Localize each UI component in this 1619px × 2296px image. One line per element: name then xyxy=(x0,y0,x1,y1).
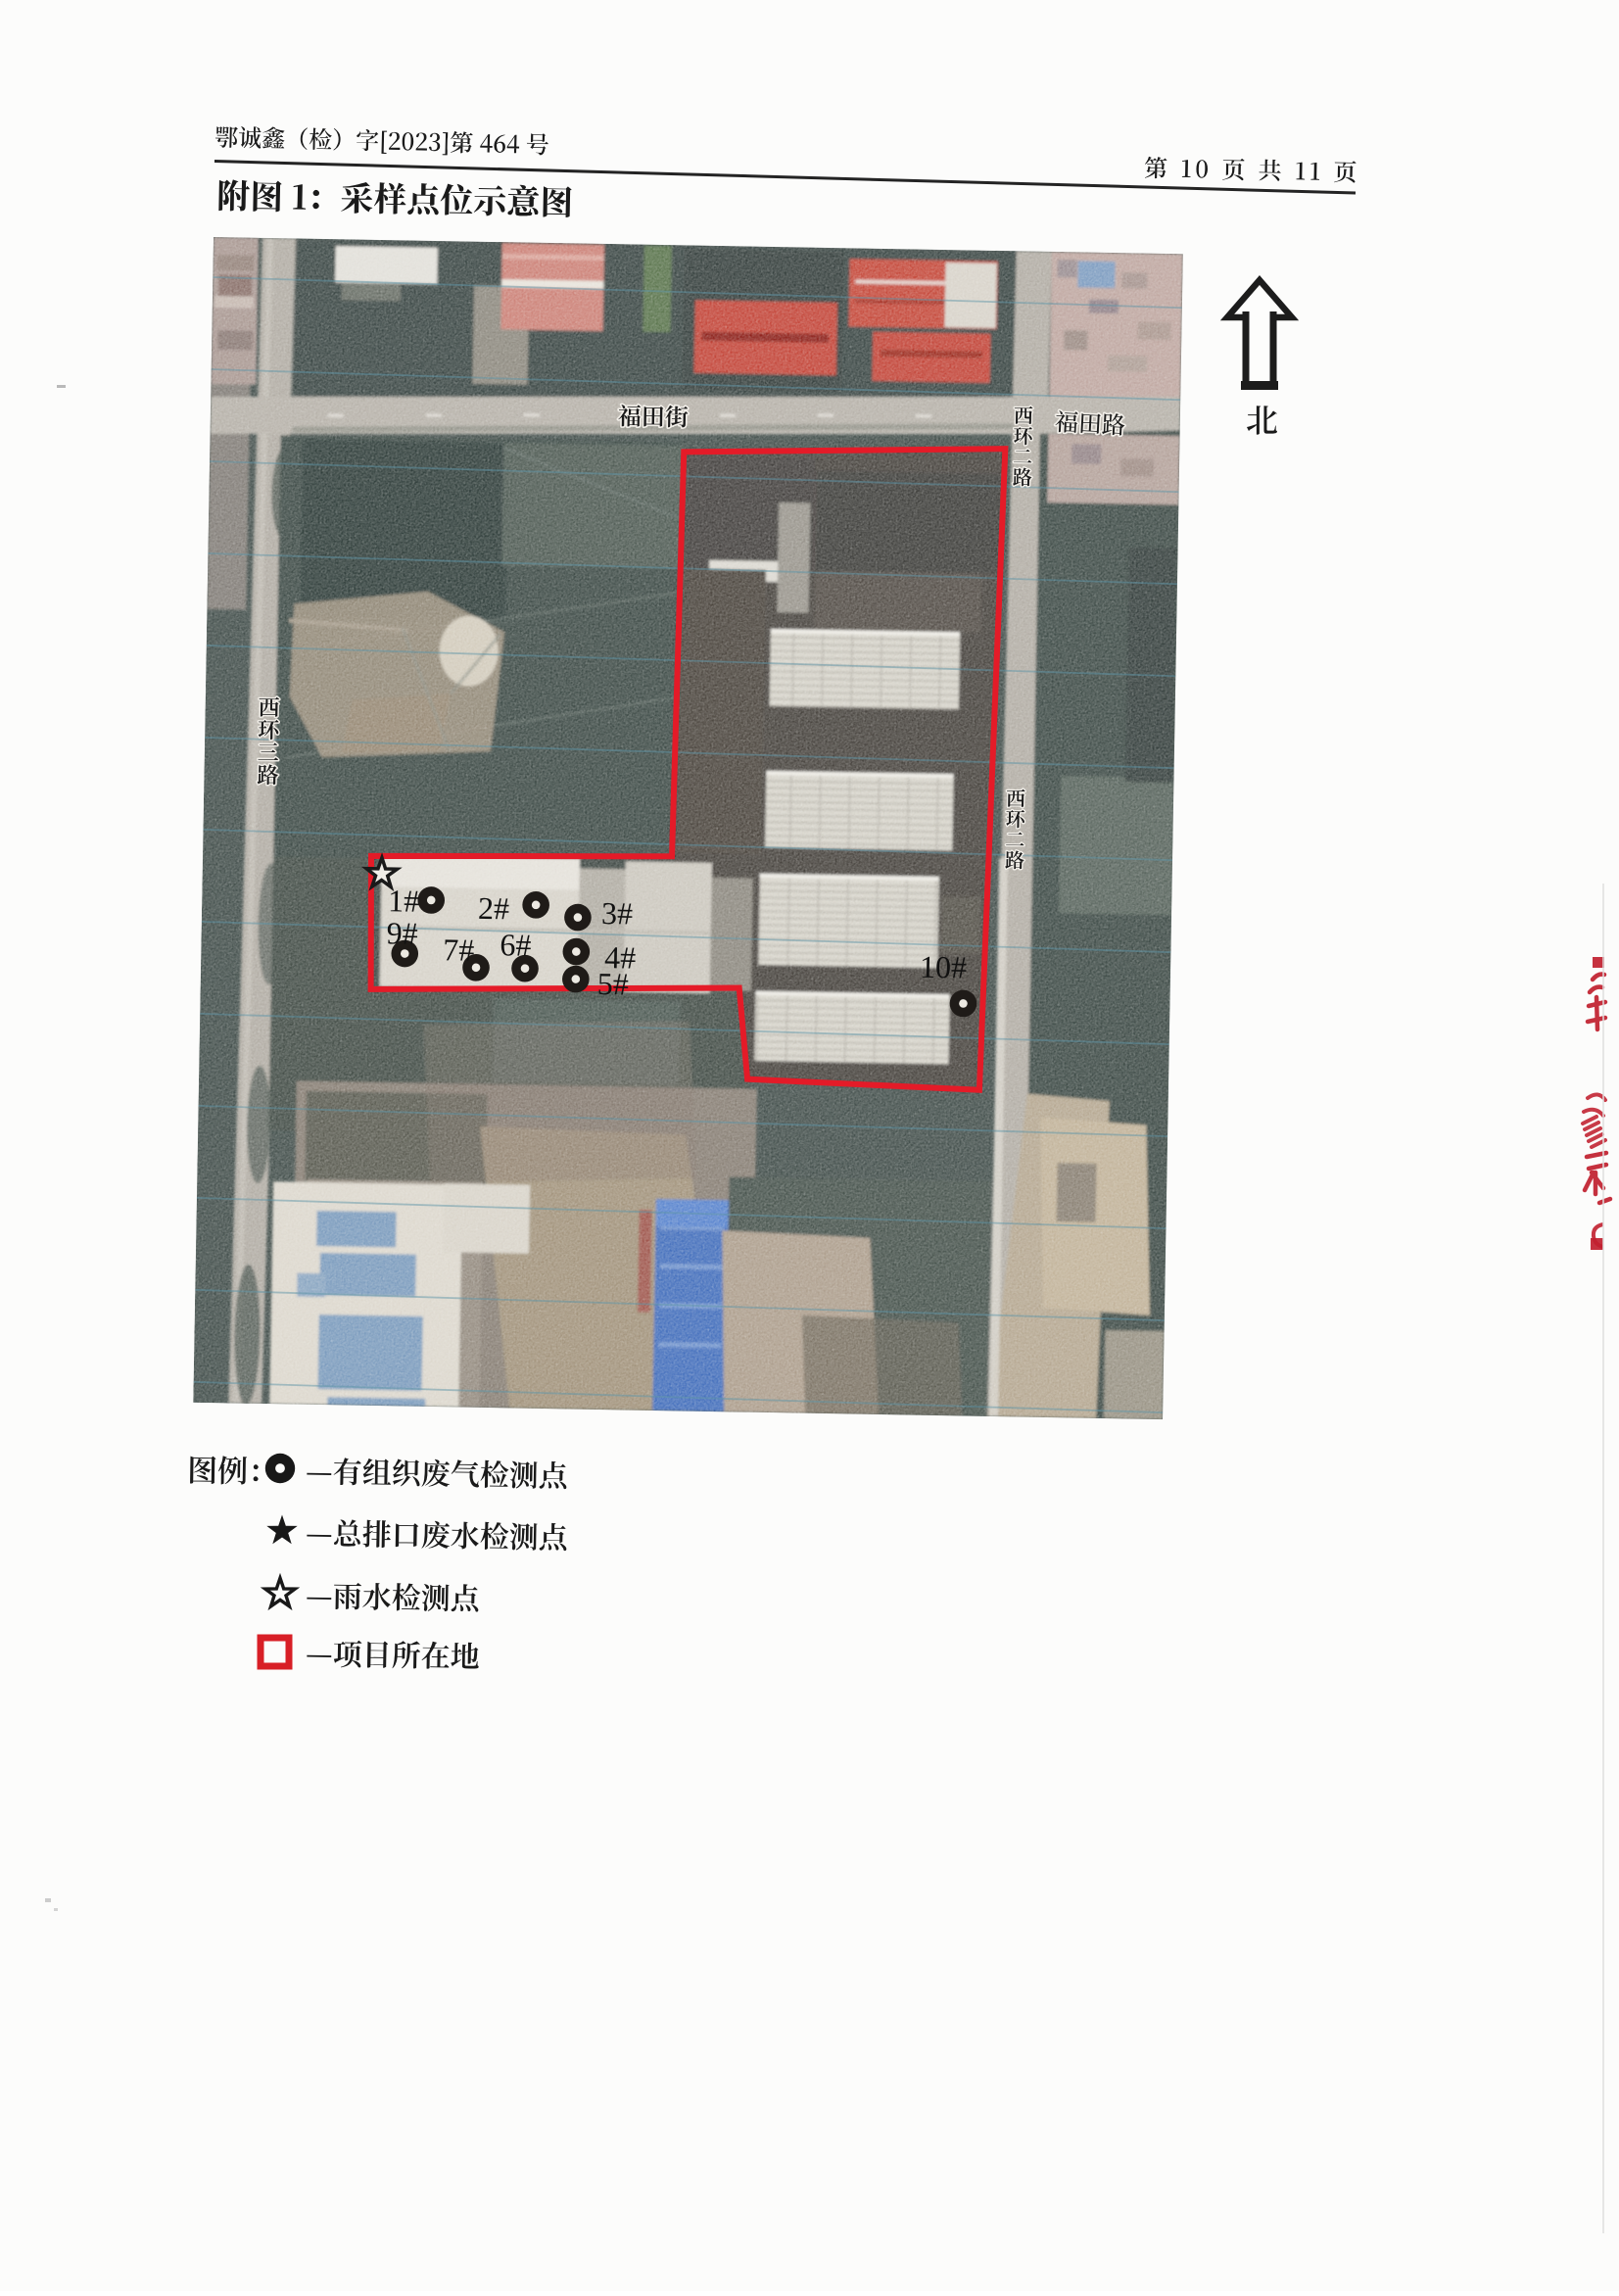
svg-text:9#: 9# xyxy=(386,915,418,951)
svg-text:2#: 2# xyxy=(478,890,510,927)
svg-text:7#: 7# xyxy=(443,932,475,968)
svg-text:6#: 6# xyxy=(500,927,532,963)
svg-text:5#: 5# xyxy=(596,966,629,1002)
svg-text:10#: 10# xyxy=(920,949,968,985)
svg-text:3#: 3# xyxy=(601,895,634,932)
svg-text:1#: 1# xyxy=(388,883,420,919)
